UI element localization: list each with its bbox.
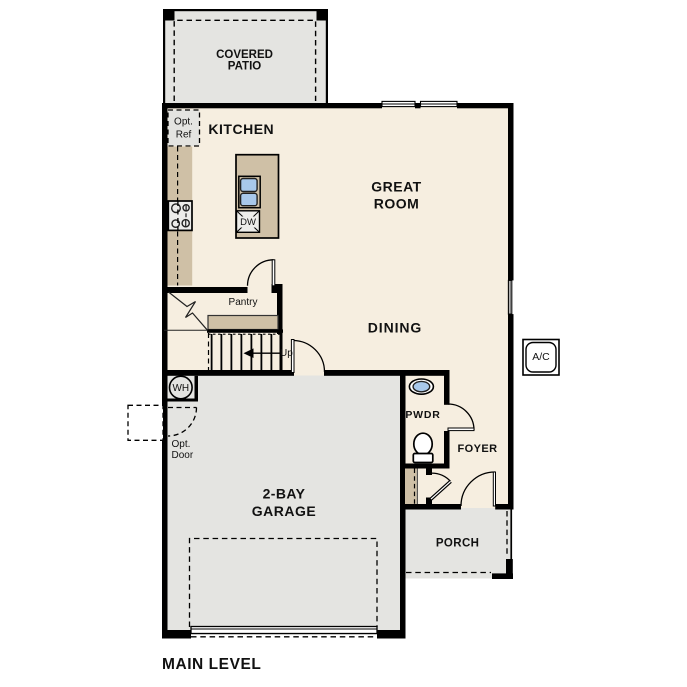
svg-text:Ref: Ref [176,130,192,141]
svg-text:DINING: DINING [368,320,422,336]
svg-text:COVERED: COVERED [216,49,273,61]
svg-text:GREAT: GREAT [371,178,421,194]
svg-text:GARAGE: GARAGE [252,503,316,519]
svg-text:Up: Up [280,348,293,359]
svg-text:Door: Door [172,450,194,461]
svg-text:MAIN LEVEL: MAIN LEVEL [162,656,261,673]
svg-text:ROOM: ROOM [374,195,420,211]
svg-text:2-BAY: 2-BAY [263,486,306,502]
svg-text:PORCH: PORCH [436,538,480,550]
svg-text:PATIO: PATIO [228,61,261,73]
svg-text:FOYER: FOYER [458,443,498,455]
svg-text:KITCHEN: KITCHEN [208,121,274,137]
svg-text:PWDR: PWDR [405,409,440,421]
svg-text:DW: DW [240,217,256,228]
svg-text:Opt.: Opt. [172,439,191,450]
svg-text:A/C: A/C [532,351,550,363]
svg-text:Opt.: Opt. [174,117,193,128]
svg-text:Pantry: Pantry [229,297,258,308]
svg-text:WH: WH [172,383,189,394]
